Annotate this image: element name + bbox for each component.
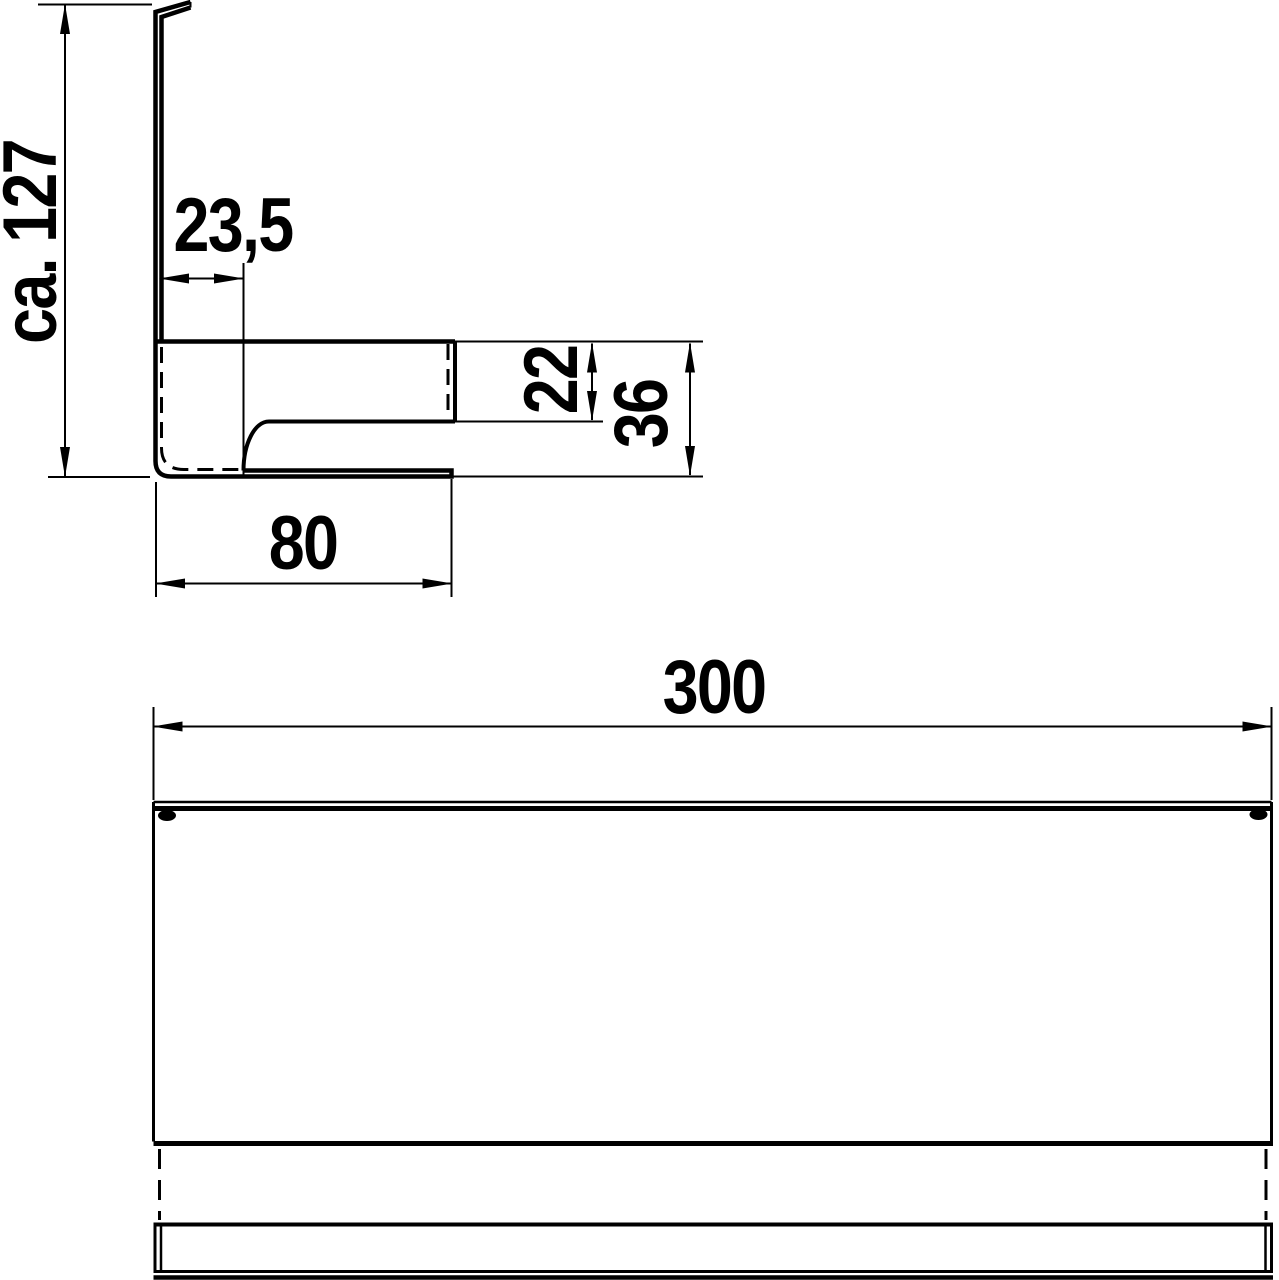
front-view [154, 707, 1274, 1278]
dimension-label-slot-height: 22 [514, 346, 590, 414]
drawing-canvas: ca. 127 23,5 22 36 80 300 [0, 0, 1279, 1280]
hook-end-detail-right [1250, 809, 1268, 820]
hook-end-detail-left [158, 810, 176, 821]
lip-bend-arc [244, 422, 270, 471]
dimension-label-width: 300 [663, 650, 766, 726]
dimension-label-depth: 80 [269, 506, 337, 582]
hidden-inner-bend [162, 347, 241, 470]
dimension-label-overall-height: ca. 127 [0, 140, 69, 344]
dimension-top-offset [160, 263, 244, 476]
dimension-label-top-offset: 23,5 [174, 188, 293, 264]
side-view [38, 2, 703, 597]
profile-inner-wall-line [162, 8, 191, 342]
dimension-label-front-height: 36 [604, 380, 680, 448]
